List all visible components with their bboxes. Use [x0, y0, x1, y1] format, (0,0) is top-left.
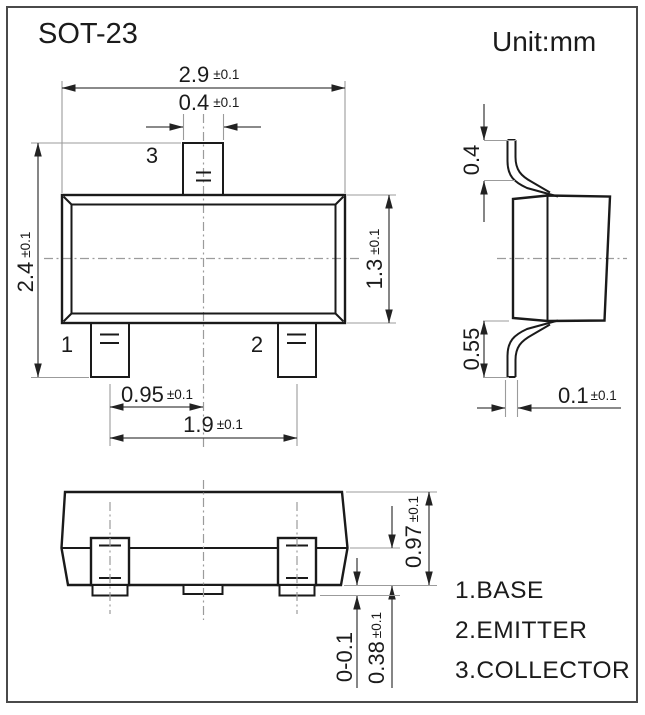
- pin-legend: 1.BASE 2.EMITTER 3.COLLECTOR: [455, 577, 630, 684]
- pin1-pad: [91, 323, 129, 377]
- dimension-text: 0.55: [459, 328, 484, 371]
- corner-bevel: [64, 197, 73, 206]
- unit-label: Unit:mm: [492, 26, 596, 57]
- bottom-gullwing-lead: [508, 321, 559, 378]
- dimension-text: 0.95±0.1: [121, 382, 193, 407]
- pin2-label: 2: [251, 332, 263, 357]
- legend-item-emitter: 2.EMITTER: [455, 617, 587, 644]
- dim-lead-bottom-height: 0.55: [459, 321, 509, 378]
- corner-bevel: [335, 197, 344, 206]
- drawing-canvas: SOT-23 Unit:mm 3 1 2: [0, 0, 645, 715]
- dimension-text: 0.1±0.1: [558, 383, 617, 408]
- legend-item-base: 1.BASE: [455, 577, 544, 604]
- pin2-pad-marks: [287, 335, 306, 344]
- side-view: 0.4 0.55 0.1±0.1: [459, 104, 627, 417]
- dimension-text: 0.4: [459, 145, 484, 176]
- dimension-text: 1.3±0.1: [362, 229, 387, 290]
- top-gullwing-lead: [508, 140, 559, 197]
- dim-front-height: 0.97±0.1: [344, 492, 437, 586]
- corner-bevel: [335, 313, 344, 322]
- legend-item-collector: 3.COLLECTOR: [455, 657, 630, 684]
- pin3-label: 3: [146, 143, 158, 168]
- pin2-pad: [278, 323, 316, 377]
- dimension-text: 1.9±0.1: [183, 412, 243, 437]
- top-view: 3 1 2 2.9±0.1 0.4±0.1 2.4±0.1: [13, 62, 396, 448]
- dim-total-height: 2.4±0.1: [13, 143, 181, 378]
- dimension-text: 0-0.1: [332, 632, 357, 682]
- dimension-text: 2.4±0.1: [13, 232, 38, 293]
- dimension-text: 2.9±0.1: [179, 62, 240, 87]
- pin1-pad-marks: [100, 335, 119, 344]
- package-outline-drawing: SOT-23 Unit:mm 3 1 2: [0, 0, 645, 715]
- dimension-text: 0.4±0.1: [179, 90, 240, 115]
- page-title: SOT-23: [38, 18, 138, 50]
- front-view: 0.97±0.1 0.38±0.1 0-0.1: [62, 480, 438, 688]
- corner-bevel: [64, 313, 73, 322]
- pin1-label: 1: [61, 332, 73, 357]
- dim-lead-thickness: 0.1±0.1: [477, 380, 621, 417]
- dimension-text: 0.38±0.1: [364, 612, 389, 684]
- dimension-text: 0.97±0.1: [401, 496, 426, 568]
